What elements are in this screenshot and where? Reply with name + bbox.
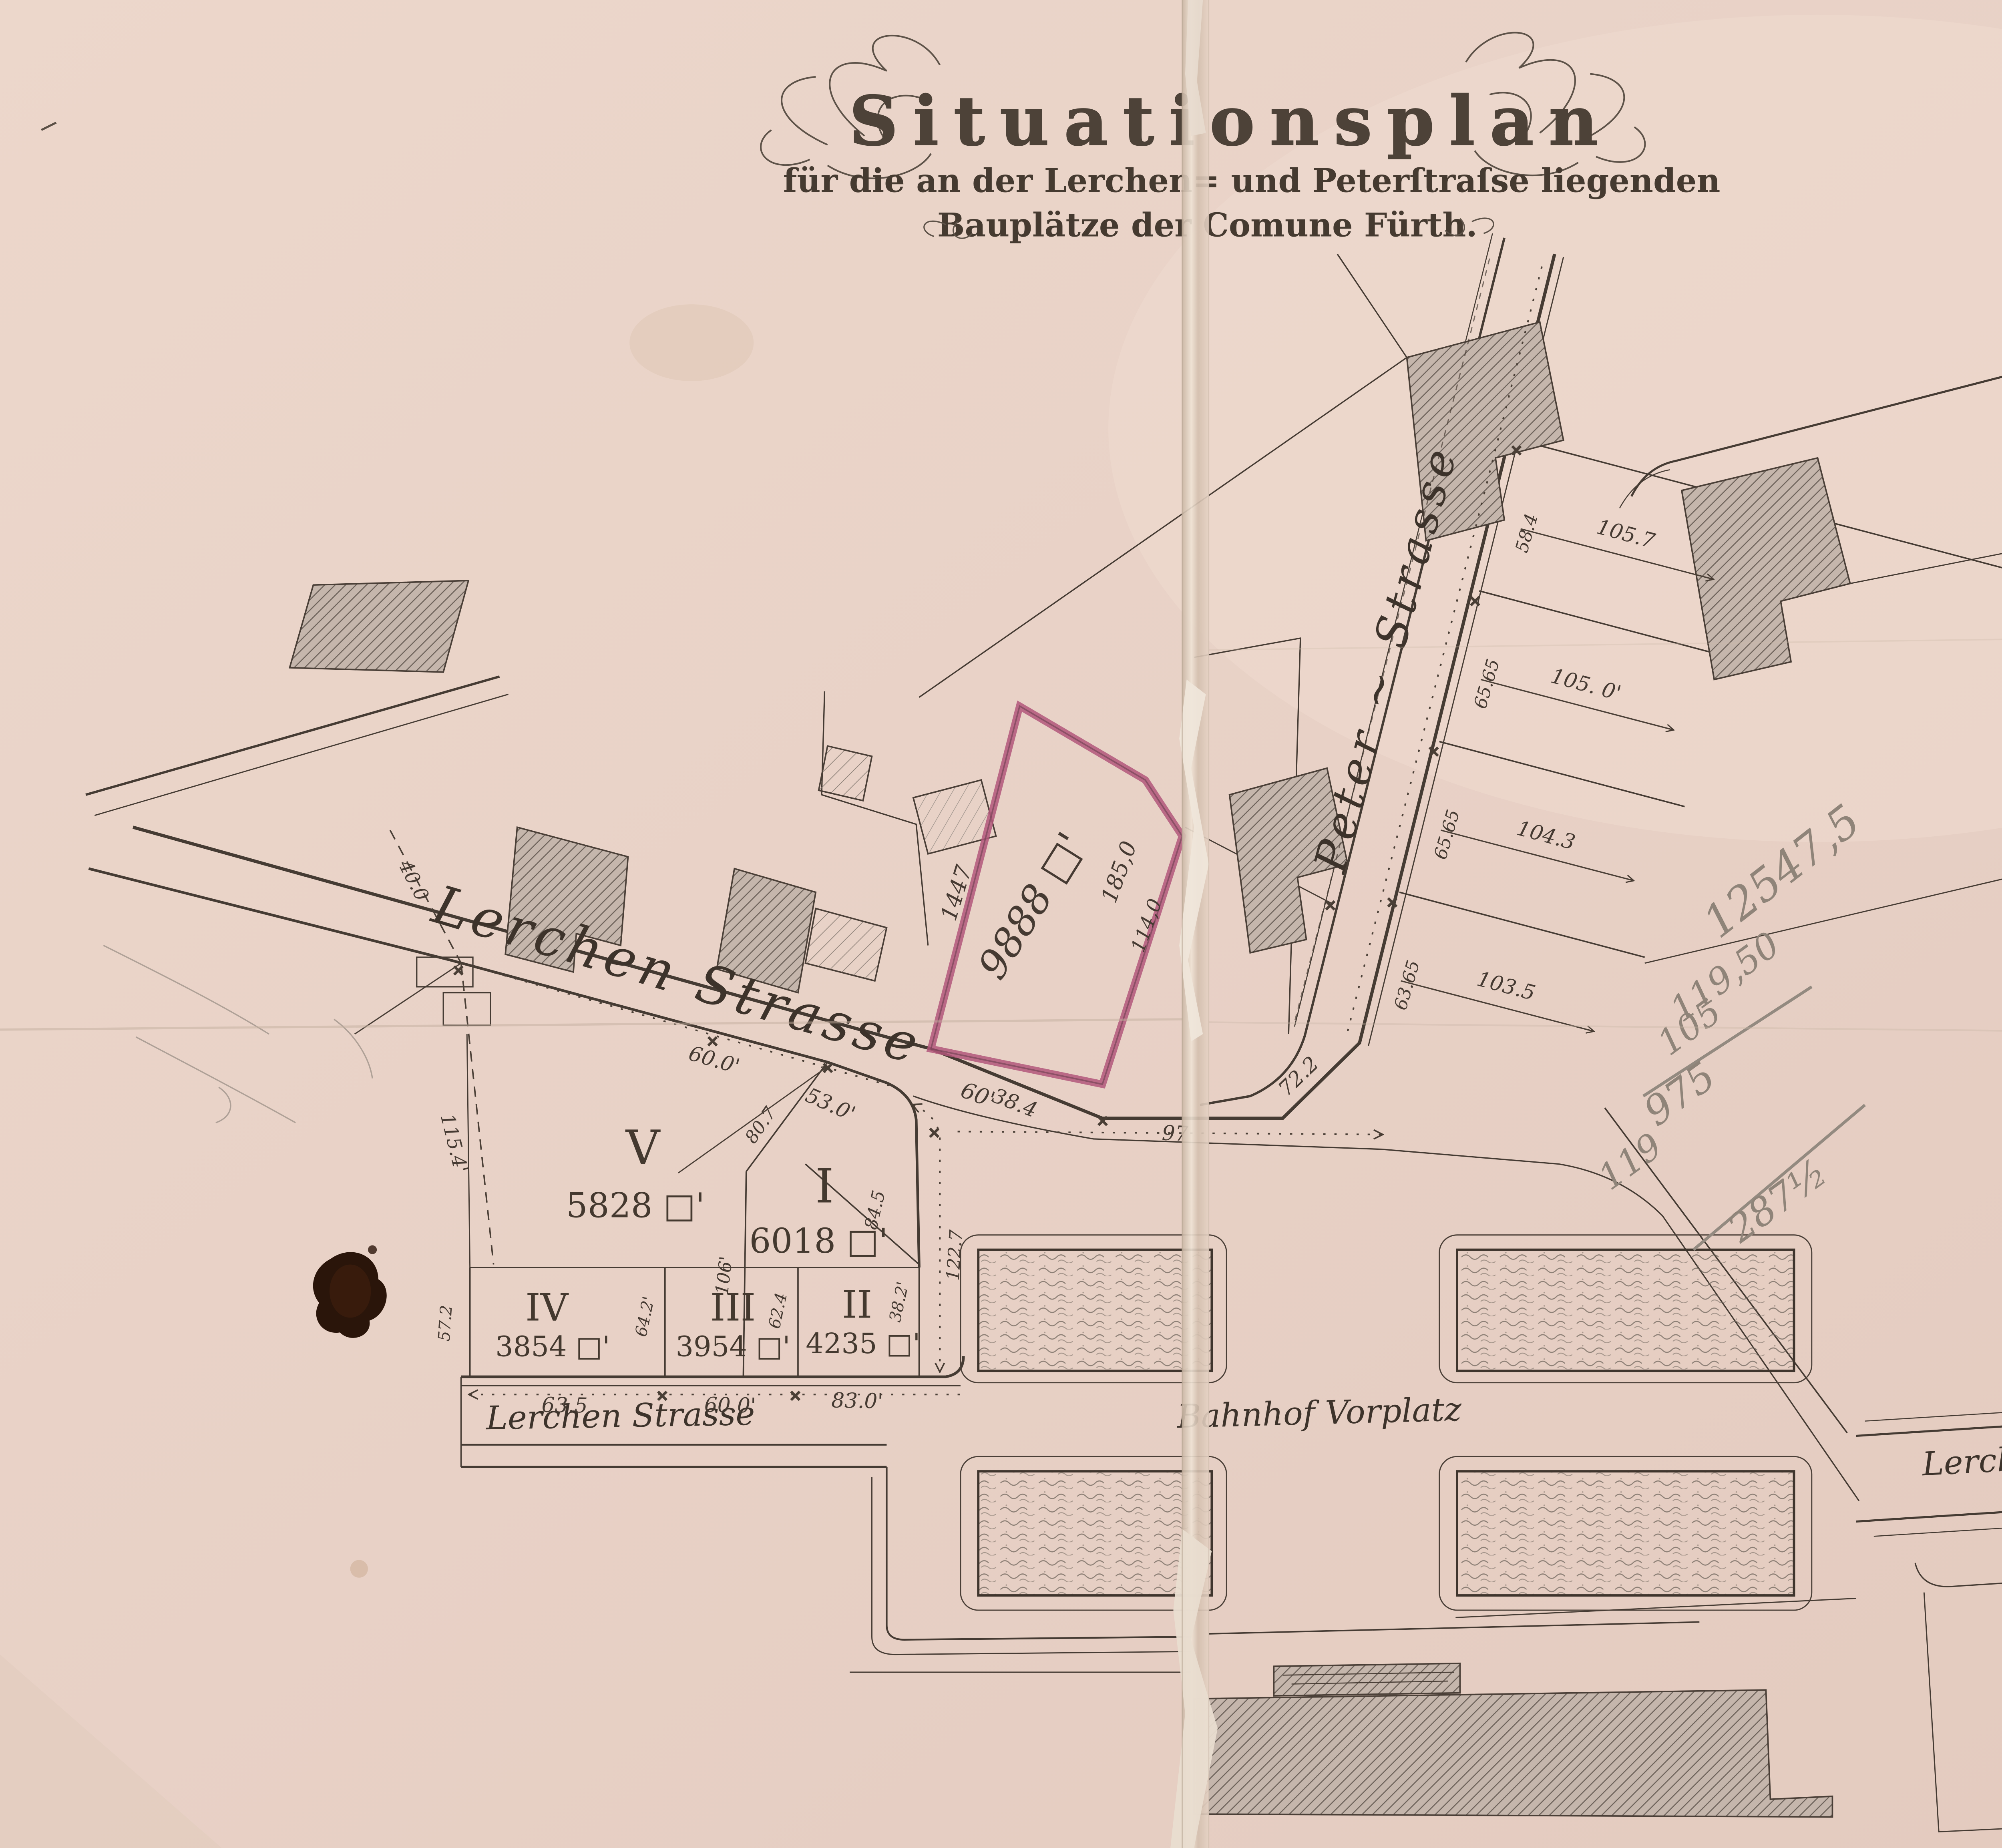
plot-v-area: 5828 □' <box>566 1186 705 1225</box>
plan-drawing: Situationsplan für die an der Lerchen= u… <box>0 0 2002 1848</box>
measure-60-0-bottom: 60.0' <box>704 1393 756 1418</box>
measure-57-2: 57.2 <box>434 1304 456 1342</box>
ink-blot-halo <box>330 1265 371 1318</box>
building-light-hatched-small <box>819 746 872 801</box>
plot-ii-area: 4235 □' <box>806 1327 920 1360</box>
measure-63-5: 63.5 <box>541 1393 588 1418</box>
svg-text:×: × <box>1324 896 1337 914</box>
station-portico <box>1274 1663 1460 1696</box>
ink-blot-speck <box>368 1245 377 1254</box>
measure-122-7: 122.7 <box>943 1229 967 1282</box>
street-label-bahnhof-vorplatz: Bahnhof Vorplatz <box>1176 1391 1463 1436</box>
svg-text:×: × <box>1427 743 1440 760</box>
svg-text:×: × <box>1386 894 1399 911</box>
svg-text:×: × <box>452 961 464 978</box>
stain-spot <box>629 304 754 381</box>
svg-text:×: × <box>789 1387 802 1404</box>
stain-dot <box>350 1560 368 1577</box>
plan-title: Situationsplan <box>849 82 1613 161</box>
svg-text:×: × <box>1096 1112 1109 1129</box>
scanned-plan-sheet: Situationsplan für die an der Lerchen= u… <box>0 0 2002 1848</box>
measure-83-0: 83.0' <box>831 1388 883 1413</box>
plot-i-numeral: I <box>815 1159 834 1214</box>
plan-subtitle-line1: für die an der Lerchen= und Peterſtraſse… <box>783 162 1721 200</box>
plot-ii-numeral: II <box>842 1282 872 1327</box>
svg-text:×: × <box>822 1059 834 1076</box>
lawn-lower-right <box>1439 1456 1812 1610</box>
building-topleft-dark <box>289 581 468 672</box>
plot-iv-area: 3854 □' <box>495 1330 610 1363</box>
plot-v-numeral: V <box>625 1120 661 1175</box>
svg-text:×: × <box>1510 441 1523 458</box>
lawn-upper-right <box>1439 1235 1812 1383</box>
plot-iii-area: 3954 □' <box>675 1330 790 1363</box>
plot-iv-numeral: IV <box>525 1285 569 1330</box>
svg-text:×: × <box>1469 592 1481 609</box>
station-building <box>1194 1690 1832 1817</box>
svg-text:×: × <box>928 1124 941 1141</box>
